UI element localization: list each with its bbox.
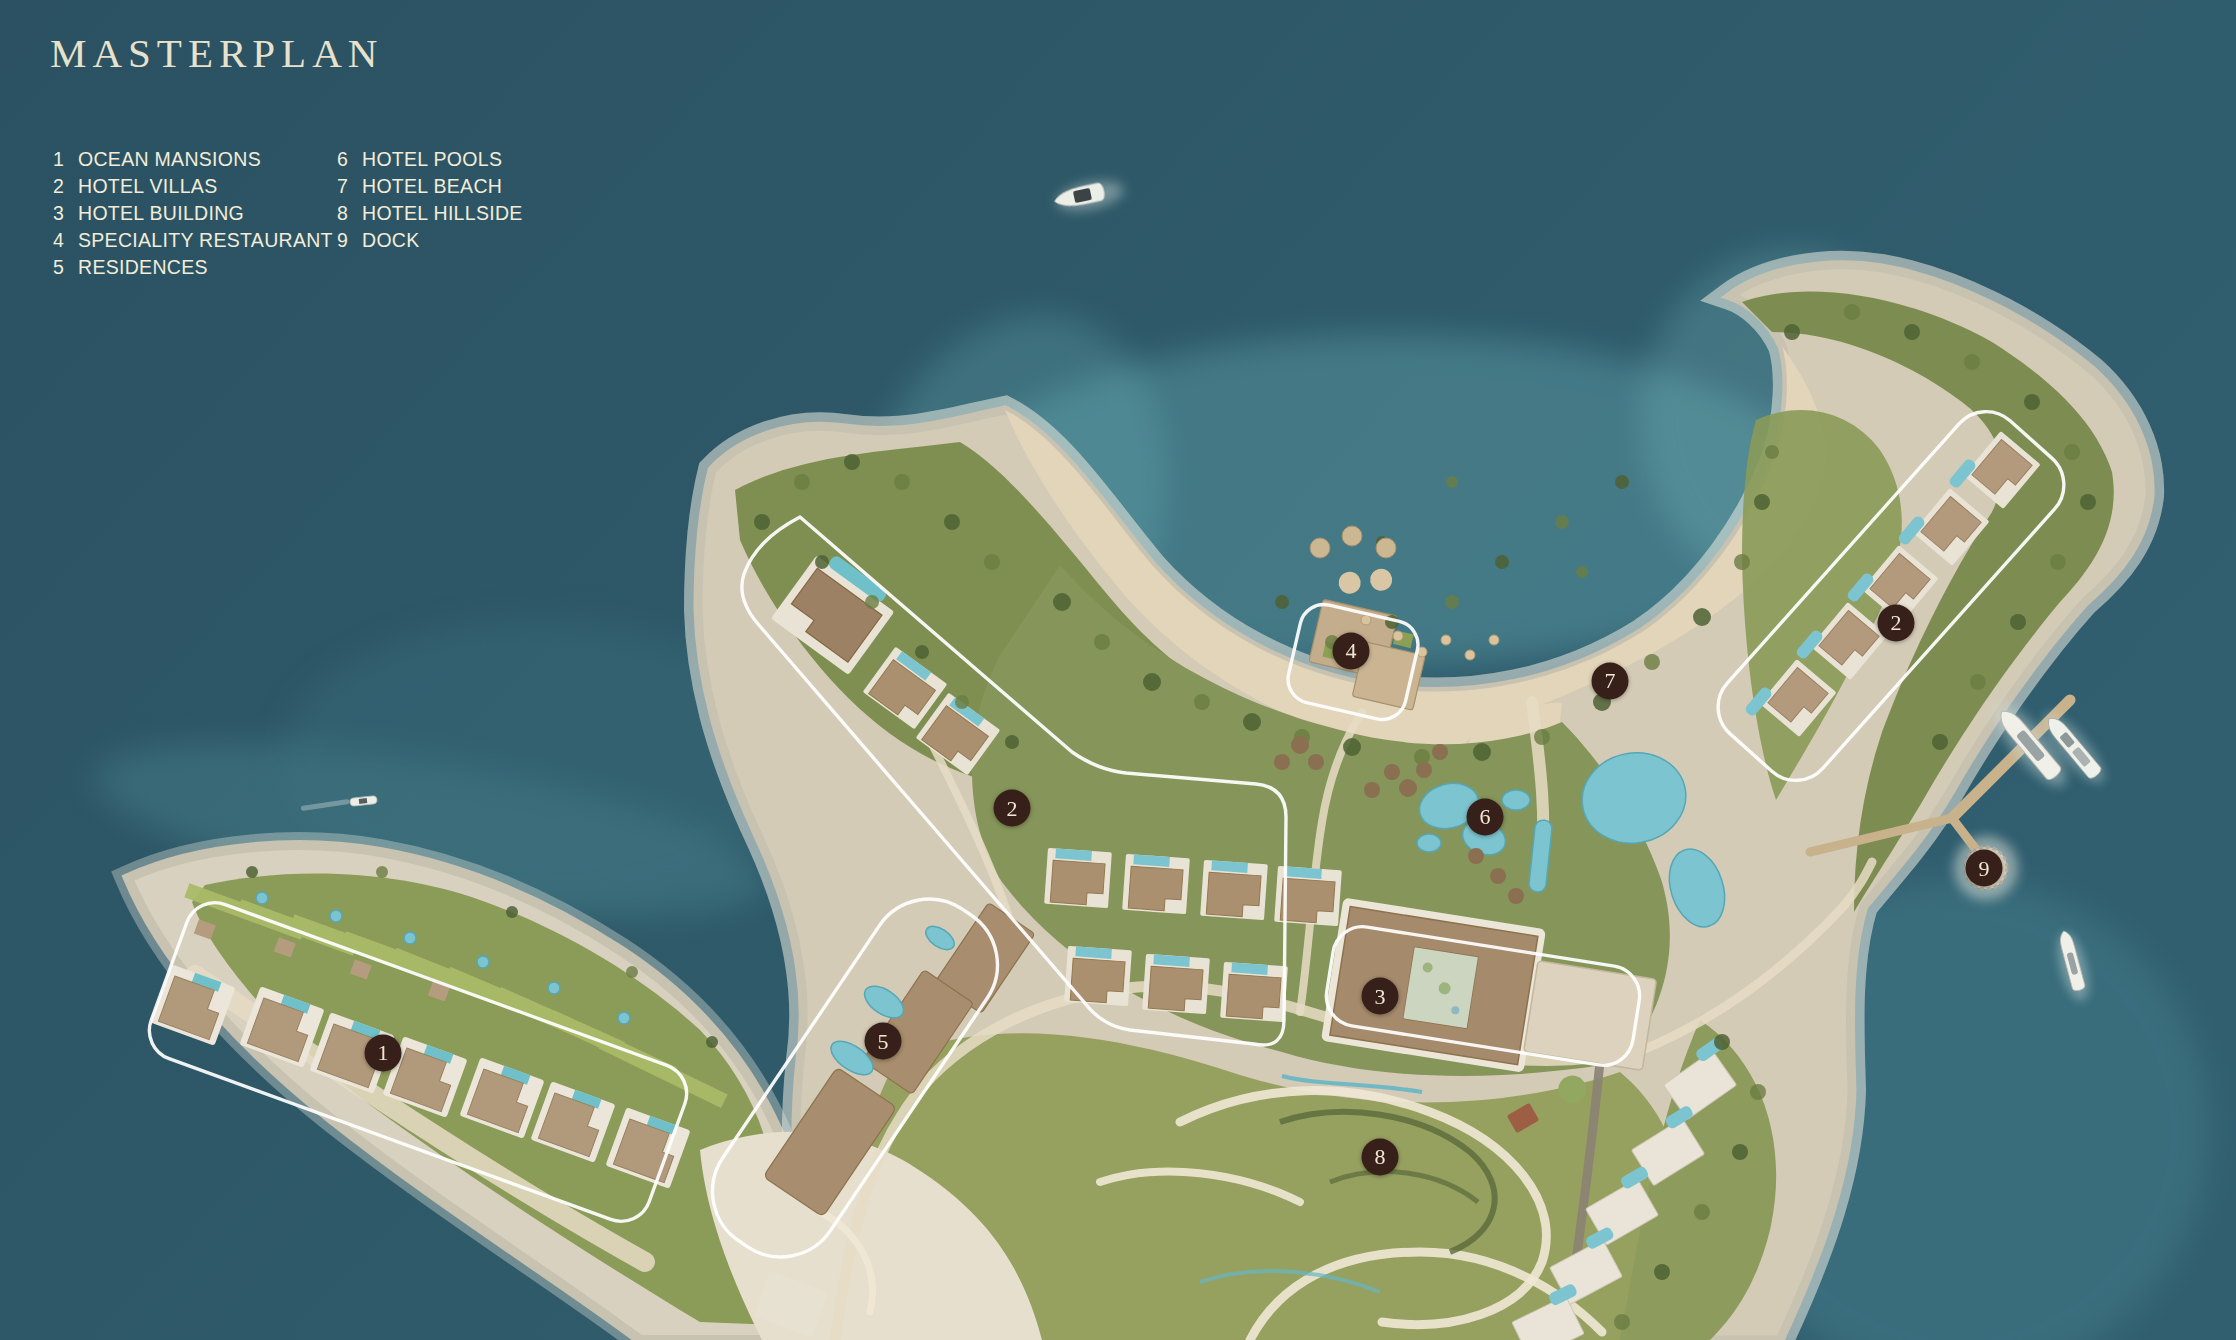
legend-item-label: HOTEL POOLS	[362, 146, 502, 173]
legend-item-number: 6	[337, 146, 362, 173]
legend-item-8: 8HOTEL HILLSIDE	[337, 200, 523, 227]
legend-item-label: HOTEL HILLSIDE	[362, 200, 523, 227]
legend-item-label: HOTEL VILLAS	[78, 173, 217, 200]
legend-item-7: 7HOTEL BEACH	[337, 173, 523, 200]
legend-item-label: RESIDENCES	[78, 254, 208, 281]
legend-item-number: 1	[53, 146, 78, 173]
legend-item-3: 3HOTEL BUILDING	[53, 200, 333, 227]
legend-item-number: 3	[53, 200, 78, 227]
legend-column-1: 1OCEAN MANSIONS2HOTEL VILLAS3HOTEL BUILD…	[53, 146, 333, 281]
map-marker-9[interactable]: 9	[1966, 850, 2003, 887]
legend-item-1: 1OCEAN MANSIONS	[53, 146, 333, 173]
map-marker-2[interactable]: 2	[994, 790, 1031, 827]
legend-column-2: 6HOTEL POOLS7HOTEL BEACH8HOTEL HILLSIDE9…	[337, 146, 523, 254]
map-marker-3[interactable]: 3	[1362, 978, 1399, 1015]
legend-item-number: 8	[337, 200, 362, 227]
legend-item-label: SPECIALITY RESTAURANT	[78, 227, 333, 254]
masterplan-page: MASTERPLAN 1OCEAN MANSIONS2HOTEL VILLAS3…	[0, 0, 2236, 1340]
legend-item-label: HOTEL BEACH	[362, 173, 502, 200]
masterplan-map	[0, 0, 2236, 1340]
legend-item-number: 4	[53, 227, 78, 254]
legend-item-5: 5RESIDENCES	[53, 254, 333, 281]
legend-item-label: OCEAN MANSIONS	[78, 146, 261, 173]
map-marker-5[interactable]: 5	[864, 1023, 901, 1060]
map-marker-8[interactable]: 8	[1362, 1138, 1399, 1175]
map-marker-6[interactable]: 6	[1466, 798, 1503, 835]
legend-item-number: 5	[53, 254, 78, 281]
legend-item-number: 2	[53, 173, 78, 200]
legend-item-4: 4SPECIALITY RESTAURANT	[53, 227, 333, 254]
legend-item-number: 9	[337, 227, 362, 254]
legend-item-2: 2HOTEL VILLAS	[53, 173, 333, 200]
map-marker-1[interactable]: 1	[365, 1034, 402, 1071]
map-marker-7[interactable]: 7	[1591, 662, 1628, 699]
legend-item-6: 6HOTEL POOLS	[337, 146, 523, 173]
map-marker-4[interactable]: 4	[1332, 632, 1369, 669]
map-marker-2[interactable]: 2	[1877, 604, 1914, 641]
legend-item-label: DOCK	[362, 227, 420, 254]
legend-item-number: 7	[337, 173, 362, 200]
legend-item-label: HOTEL BUILDING	[78, 200, 244, 227]
legend-item-9: 9DOCK	[337, 227, 523, 254]
page-title: MASTERPLAN	[50, 29, 383, 77]
